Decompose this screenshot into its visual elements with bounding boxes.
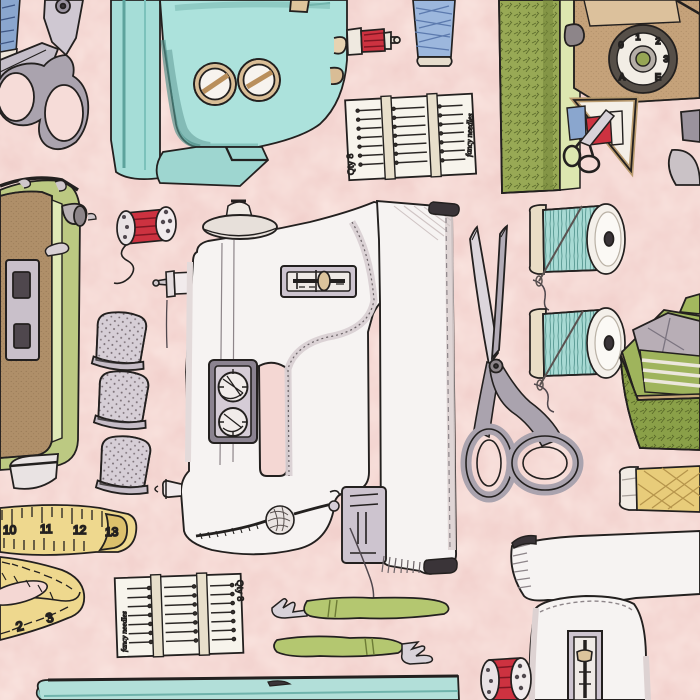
svg-text:13: 13 [105, 525, 119, 539]
svg-text:fancy needles: fancy needles [119, 611, 128, 652]
svg-text:fancy needles: fancy needles [464, 113, 475, 157]
svg-text:Qty 8: Qty 8 [345, 153, 356, 175]
svg-text:12: 12 [73, 523, 87, 537]
svg-text:Qty 8: Qty 8 [235, 580, 246, 602]
svg-text:2: 2 [655, 36, 660, 46]
svg-text:3: 3 [663, 54, 668, 64]
svg-text:0: 0 [618, 40, 623, 50]
svg-text:11: 11 [40, 522, 53, 536]
svg-text:10: 10 [3, 523, 17, 537]
svg-text:1: 1 [635, 32, 640, 42]
svg-text:E: E [655, 72, 661, 82]
svg-text:A: A [619, 72, 625, 82]
